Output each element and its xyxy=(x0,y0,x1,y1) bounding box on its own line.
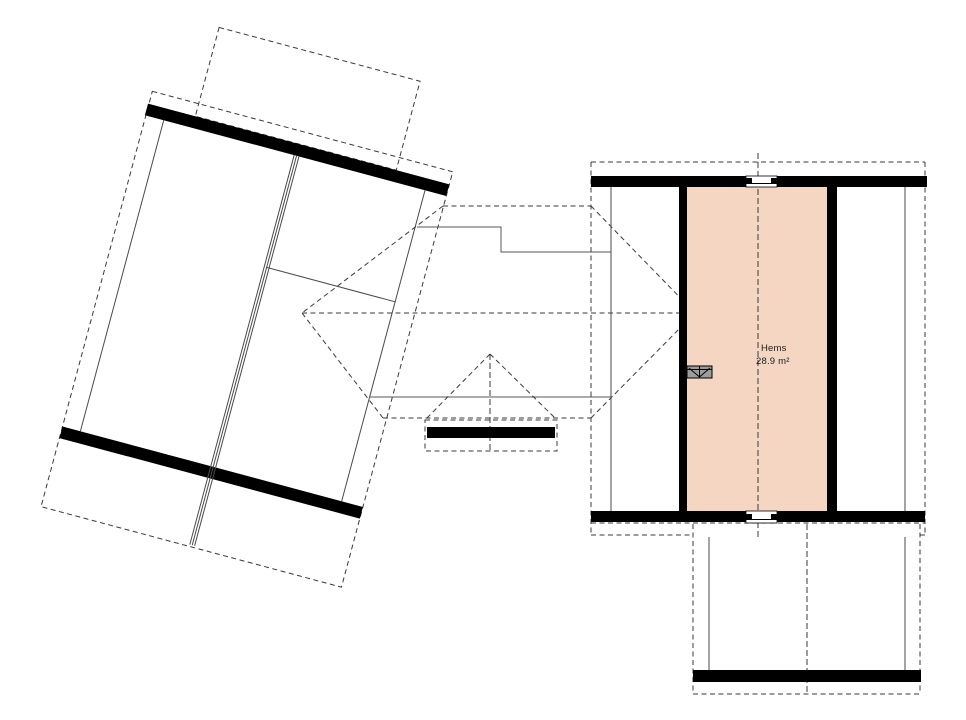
window-symbol-top xyxy=(746,176,777,187)
dormer-hip-left xyxy=(425,354,490,420)
hip-left-bottom xyxy=(302,313,383,418)
room-wall-right xyxy=(827,176,837,522)
window-symbol-bottom xyxy=(746,511,777,523)
room-wall-left xyxy=(679,176,687,522)
loft-floorplan-drawing: Hems 28.9 m² xyxy=(0,0,966,720)
left-wall-line xyxy=(80,120,163,431)
top-wall xyxy=(145,104,449,196)
room-area-label: 28.9 m² xyxy=(756,356,790,367)
room-name-label: Hems xyxy=(761,343,787,354)
dormer-front-wall xyxy=(427,427,555,438)
entry-dormer xyxy=(425,354,557,451)
connector-roof xyxy=(302,206,697,418)
hip-left-top xyxy=(302,206,443,313)
lower-extension xyxy=(693,524,921,694)
lower-floor-wall-step-line xyxy=(417,227,611,252)
left-building xyxy=(40,15,473,587)
interior-wall-line xyxy=(267,267,395,301)
loft-ladder-hatch-symbol xyxy=(687,366,712,378)
right-building: Hems 28.9 m² xyxy=(591,153,927,537)
dormer-hip-right xyxy=(490,354,557,420)
right-wall-line xyxy=(342,190,425,501)
hems-room-fill xyxy=(687,187,827,511)
floorplan-canvas: Hems 28.9 m² xyxy=(0,0,966,720)
extension-wall xyxy=(693,670,921,682)
